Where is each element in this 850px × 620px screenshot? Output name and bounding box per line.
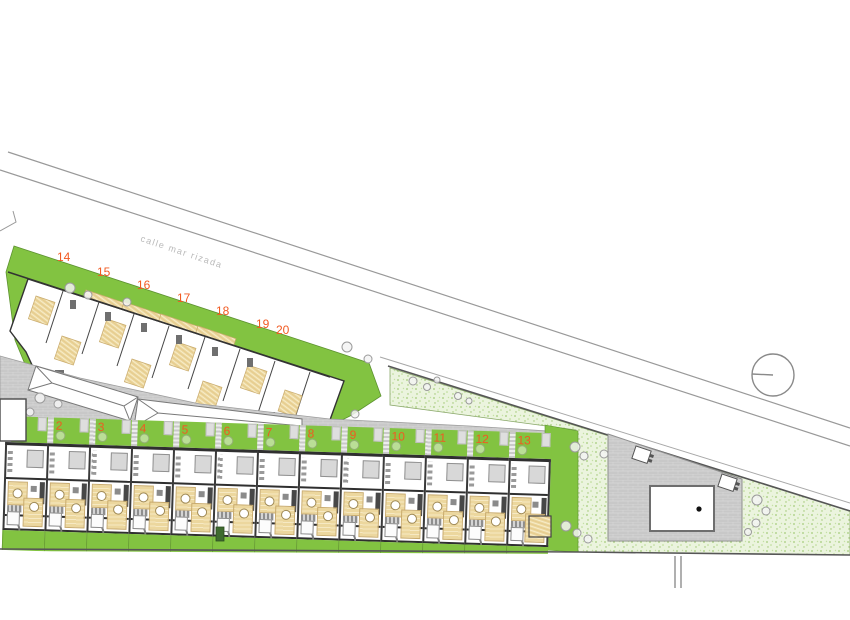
round-table	[138, 492, 148, 502]
tree-icon	[26, 408, 34, 416]
circle-marker-icon	[752, 354, 794, 396]
entry-path	[457, 430, 466, 444]
bed	[300, 520, 313, 534]
rear-deck	[442, 511, 463, 541]
back-garden	[380, 542, 423, 563]
unit-cell: 6	[212, 423, 258, 558]
tree-icon	[35, 393, 45, 403]
house-plan	[296, 451, 341, 540]
tree-icon	[752, 519, 760, 527]
rear-deck	[190, 503, 211, 533]
unit-cell: 2	[44, 417, 90, 552]
house-plan	[86, 445, 131, 534]
lower-terrace-row: 2 3	[2, 416, 552, 567]
appliance	[450, 499, 456, 505]
bed	[133, 515, 146, 529]
unit-cell: 12	[464, 431, 510, 566]
tree-icon	[223, 436, 233, 446]
tree-icon	[424, 384, 431, 391]
tree-icon	[570, 442, 580, 452]
tree-icon	[434, 377, 440, 383]
interior-wall	[342, 488, 382, 491]
appliance	[324, 495, 330, 501]
round-table	[390, 500, 400, 510]
wardrobe	[385, 460, 391, 484]
interior-wall	[384, 489, 424, 492]
rear-deck	[484, 512, 505, 542]
interior-wall	[258, 485, 298, 488]
rear-deck	[232, 504, 253, 534]
tree-icon	[517, 445, 527, 455]
wardrobe	[133, 452, 139, 476]
dining-table	[152, 454, 170, 473]
interior-wall	[132, 481, 172, 484]
rear-deck	[106, 500, 127, 530]
tree-icon	[752, 495, 762, 505]
unit-cell: 13	[506, 432, 552, 567]
tree-icon	[466, 398, 472, 404]
unit-cell: 9	[338, 427, 384, 562]
round-table	[348, 499, 358, 509]
tree-icon	[745, 529, 752, 536]
appliance	[199, 491, 205, 497]
rear-deck	[316, 507, 337, 537]
rear-deck	[524, 513, 545, 543]
tree-icon	[409, 377, 417, 385]
house-plan	[380, 454, 425, 543]
entry-path	[38, 417, 47, 431]
unit-cell: 3	[86, 419, 132, 554]
dining-table	[68, 451, 86, 470]
bed	[468, 526, 481, 540]
wardrobe	[217, 455, 223, 479]
round-table	[197, 507, 207, 517]
back-garden	[128, 534, 171, 555]
upper-unit-number: 19	[256, 317, 270, 331]
interior-wall	[174, 482, 214, 485]
round-table	[281, 510, 291, 520]
appliance	[408, 498, 414, 504]
tree-icon	[97, 432, 107, 442]
rear-deck	[358, 508, 379, 538]
boundary-gate	[675, 556, 681, 588]
round-table	[222, 495, 232, 505]
tree-icon	[342, 342, 352, 352]
appliance	[366, 496, 372, 502]
tree-icon	[391, 441, 401, 451]
round-table	[12, 488, 22, 498]
interior-wall	[6, 477, 46, 480]
front-garden: 7	[257, 424, 300, 451]
back-garden	[464, 544, 507, 565]
entry-path	[205, 422, 214, 436]
front-garden: 4	[131, 420, 174, 447]
tree-icon	[13, 429, 23, 439]
dining-table	[488, 464, 506, 483]
front-garden: 11	[425, 429, 468, 456]
tree-icon	[762, 507, 770, 515]
site-plan: calle mar rizada	[0, 0, 850, 620]
unit-cell: 5	[170, 421, 216, 556]
entry-path	[163, 421, 172, 435]
round-table	[432, 501, 442, 511]
unit-cell: 11	[422, 429, 468, 564]
round-table	[306, 497, 316, 507]
round-table	[323, 511, 333, 521]
bed	[49, 512, 62, 526]
back-garden	[44, 531, 87, 552]
dining-table	[278, 458, 296, 477]
front-garden: 3	[89, 419, 132, 446]
front-garden	[5, 416, 48, 443]
house-plan	[170, 447, 215, 536]
wardrobe	[49, 449, 55, 473]
entry-path	[373, 428, 382, 442]
bed	[384, 523, 397, 537]
entry-path	[541, 433, 550, 447]
unit-cell	[2, 416, 48, 551]
dining-table	[362, 460, 380, 479]
bed	[426, 524, 439, 538]
upper-unit-number: 16	[137, 278, 151, 292]
entry-path	[289, 425, 298, 439]
round-table	[407, 514, 417, 524]
wardrobe	[427, 461, 433, 485]
wardrobe	[511, 464, 517, 488]
wardrobe	[91, 451, 97, 475]
back-garden	[506, 546, 549, 567]
rear-deck	[400, 509, 421, 539]
bed	[91, 514, 104, 528]
upper-unit-number: 18	[216, 304, 230, 318]
pool-area	[608, 434, 742, 541]
round-table	[96, 491, 106, 501]
house-plan	[212, 449, 257, 538]
upper-unit-number: 15	[97, 265, 111, 279]
tree-icon	[139, 433, 149, 443]
house-plan	[128, 446, 173, 535]
front-garden: 9	[341, 427, 384, 454]
rear-deck	[274, 506, 295, 536]
wardrobe	[175, 453, 181, 477]
tree-icon	[584, 535, 592, 543]
appliance	[283, 494, 289, 500]
tree-icon	[84, 291, 92, 299]
bed	[258, 519, 271, 533]
wardrobe	[469, 463, 475, 487]
tree-icon	[265, 437, 275, 447]
house-plan	[44, 443, 89, 532]
back-garden	[170, 535, 213, 556]
tree-icon	[364, 355, 372, 363]
tree-icon	[600, 450, 608, 458]
dining-table	[236, 456, 254, 475]
front-garden: 10	[383, 428, 426, 455]
upper-unit-number: 20	[276, 323, 290, 337]
round-table	[264, 496, 274, 506]
round-table	[54, 490, 64, 500]
tree-icon	[349, 440, 359, 450]
back-garden	[254, 538, 297, 559]
front-garden: 2	[47, 417, 90, 444]
interior-wall	[90, 480, 130, 483]
upper-unit-number: 14	[57, 250, 71, 264]
wardrobe	[259, 456, 265, 480]
pool-drain	[696, 506, 701, 511]
bed	[216, 518, 229, 532]
house-plan	[506, 458, 551, 547]
back-garden	[296, 539, 339, 560]
round-table	[474, 503, 484, 513]
front-garden: 13	[509, 432, 552, 459]
entry-path	[331, 426, 340, 440]
entry-path	[122, 420, 131, 434]
round-table	[29, 502, 39, 512]
interior-wall	[216, 484, 256, 487]
tree-icon	[307, 438, 317, 448]
back-garden	[212, 537, 255, 558]
dining-table	[194, 455, 212, 474]
tree-icon	[181, 435, 191, 445]
front-garden: 5	[173, 421, 216, 448]
wardrobe	[7, 448, 13, 472]
entry-path	[415, 429, 424, 443]
upper-unit-number: 17	[177, 291, 191, 305]
tree-icon	[580, 452, 588, 460]
back-garden	[2, 530, 45, 551]
appliance	[73, 487, 79, 493]
round-table	[113, 504, 123, 514]
back-garden	[338, 540, 381, 561]
tree-icon	[561, 521, 571, 531]
back-garden	[86, 533, 129, 554]
round-table	[449, 515, 459, 525]
round-table	[531, 518, 541, 528]
bed	[174, 516, 187, 530]
unit-cell: 7	[254, 424, 300, 559]
appliance	[532, 502, 538, 508]
pool	[650, 486, 714, 531]
front-garden: 12	[467, 431, 510, 458]
appliance	[241, 492, 247, 498]
bed	[510, 527, 523, 541]
entry-path	[80, 418, 89, 432]
wardrobe	[301, 457, 307, 481]
house-plan	[338, 453, 383, 542]
rear-deck	[148, 502, 169, 532]
round-table	[180, 494, 190, 504]
appliance	[31, 486, 37, 492]
house-plan	[2, 442, 47, 531]
unit-cell: 10	[380, 428, 426, 563]
round-table	[491, 516, 501, 526]
interior-wall	[300, 486, 340, 489]
dining-table	[110, 452, 128, 471]
entry-path	[499, 432, 508, 446]
appliance	[115, 488, 121, 494]
interior-wall	[510, 493, 548, 496]
interior-wall	[468, 492, 508, 495]
round-table	[71, 503, 81, 513]
front-garden: 8	[299, 425, 342, 452]
appliance	[492, 500, 498, 506]
tree-icon	[54, 400, 62, 408]
entry-path	[247, 424, 256, 438]
dining-table	[404, 462, 422, 481]
bed	[342, 522, 355, 536]
unit-cell: 8	[296, 425, 342, 560]
tree-icon	[573, 529, 581, 537]
back-garden	[422, 543, 465, 564]
tree-icon	[123, 298, 131, 306]
dining-table	[320, 459, 338, 478]
tree-icon	[55, 431, 65, 441]
round-table	[155, 506, 165, 516]
dining-table	[446, 463, 464, 482]
appliance	[157, 490, 163, 496]
interior-wall	[48, 478, 88, 481]
round-table	[239, 508, 249, 518]
tree-icon	[65, 283, 75, 293]
dining-table	[528, 465, 546, 484]
wardrobe	[343, 459, 349, 483]
tree-icon	[475, 444, 485, 454]
house-plan	[422, 455, 467, 544]
bed	[7, 511, 20, 525]
rear-deck	[65, 499, 86, 529]
unit-cell: 4	[128, 420, 174, 555]
house-plan	[464, 456, 509, 545]
rear-deck	[23, 498, 44, 528]
house-plan	[254, 450, 299, 539]
interior-wall	[426, 490, 466, 493]
tree-icon	[433, 442, 443, 452]
round-table	[365, 512, 375, 522]
tree-icon	[455, 393, 462, 400]
dining-table	[26, 450, 44, 469]
tree-icon	[351, 410, 359, 418]
front-garden: 6	[215, 423, 258, 450]
